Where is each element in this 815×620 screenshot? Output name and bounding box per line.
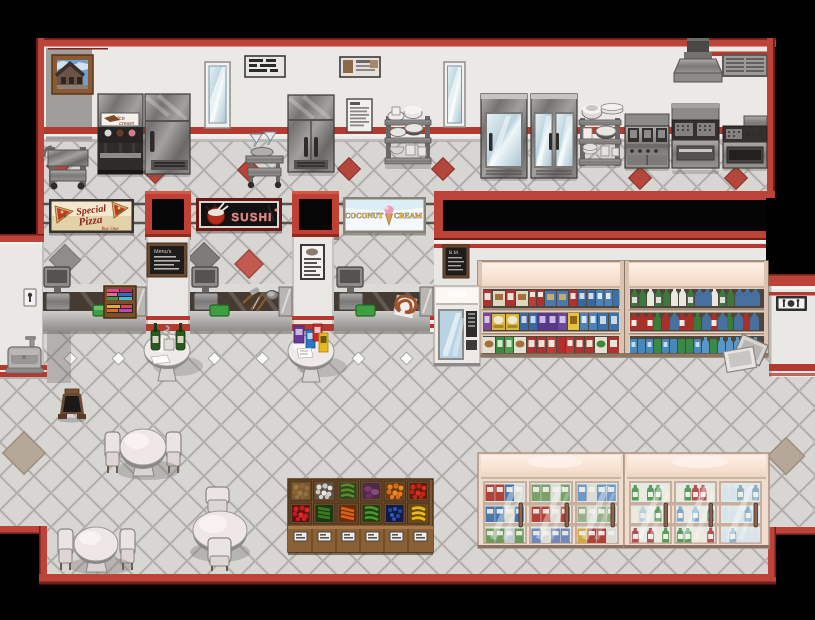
svg-text:B.M.: B.M. — [449, 250, 459, 256]
svg-text:CREAM: CREAM — [394, 211, 422, 220]
svg-text:SUSHI: SUSHI — [231, 212, 272, 224]
svg-text:cream: cream — [119, 121, 135, 127]
svg-text:COCONUT: COCONUT — [345, 211, 383, 220]
svg-text:Buy One: Buy One — [101, 226, 119, 232]
svg-text:Menu's: Menu's — [154, 249, 172, 255]
